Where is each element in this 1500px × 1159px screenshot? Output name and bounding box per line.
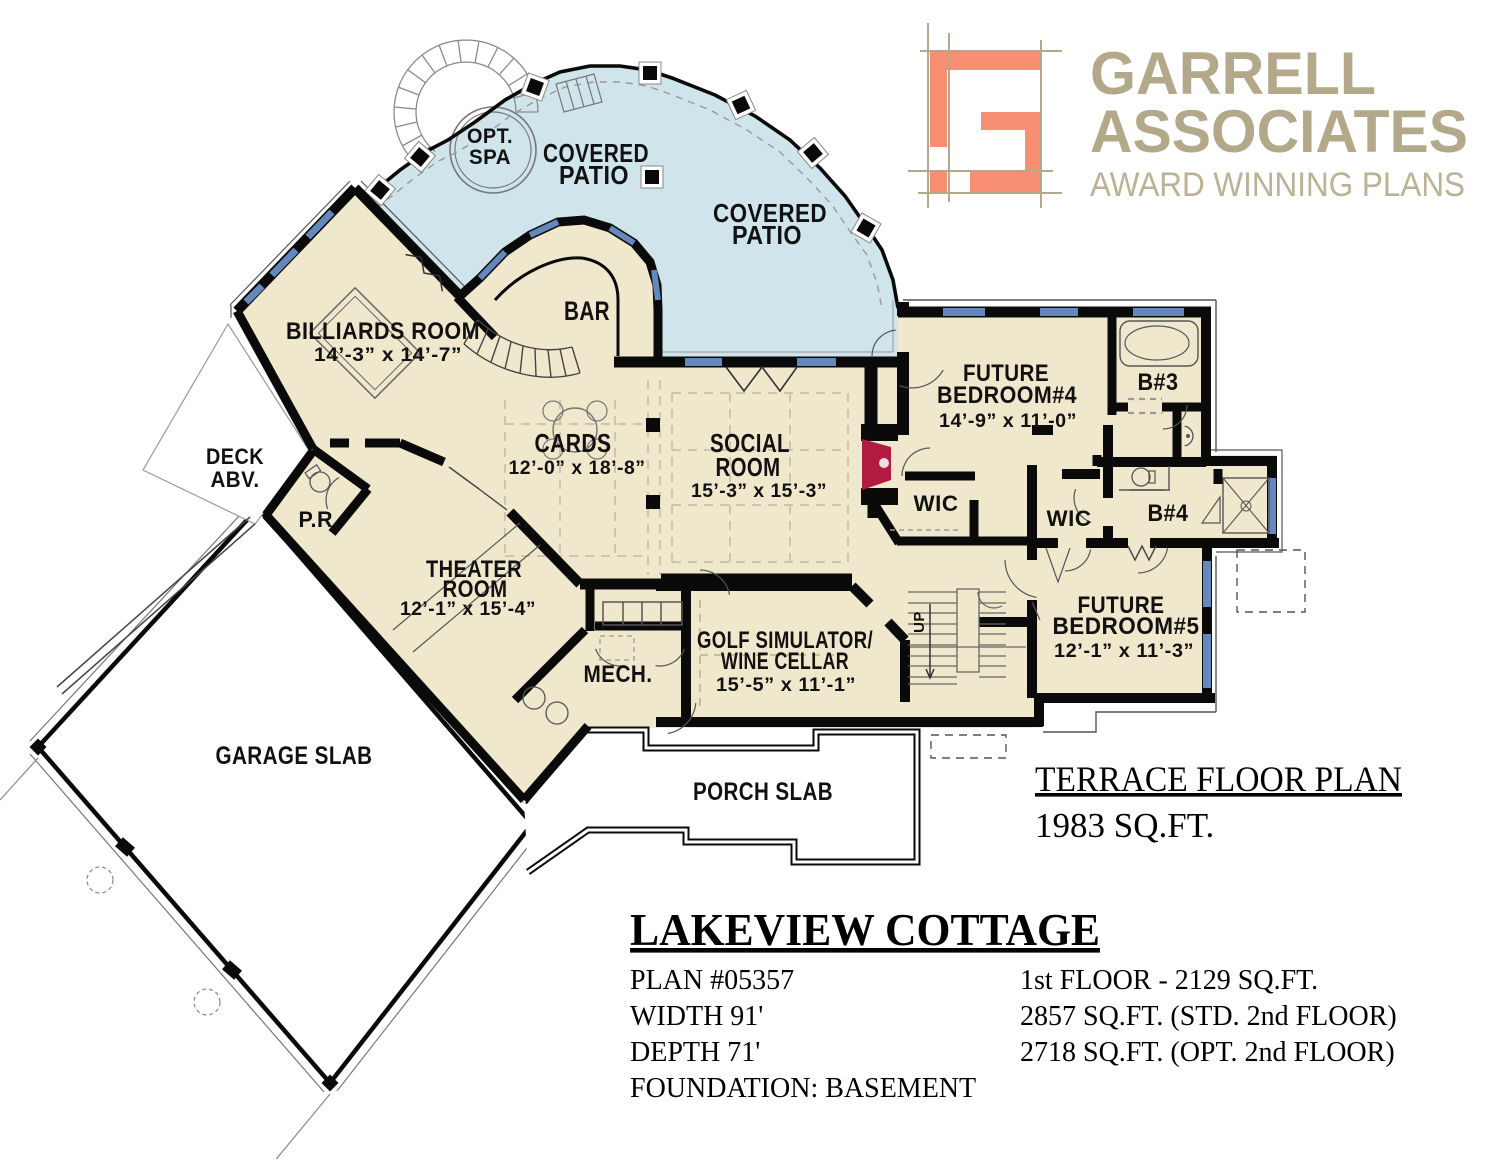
svg-text:TERRACE FLOOR PLAN: TERRACE FLOOR PLAN xyxy=(1035,759,1402,799)
svg-text:PATIO: PATIO xyxy=(559,160,629,190)
svg-text:P.R.: P.R. xyxy=(299,507,340,532)
svg-text:15’-3” x 15’-3”: 15’-3” x 15’-3” xyxy=(691,481,827,502)
svg-text:CARDS: CARDS xyxy=(535,428,612,458)
svg-text:PORCH SLAB: PORCH SLAB xyxy=(693,778,833,806)
svg-text:GARRELL: GARRELL xyxy=(1090,40,1376,107)
svg-text:WIC: WIC xyxy=(914,491,959,516)
svg-text:DECK: DECK xyxy=(206,444,264,469)
svg-text:WIC: WIC xyxy=(1047,506,1092,531)
svg-text:14’-3” x 14’-7”: 14’-3” x 14’-7” xyxy=(314,345,462,366)
svg-text:GARAGE SLAB: GARAGE SLAB xyxy=(216,742,373,770)
svg-text:B#4: B#4 xyxy=(1148,500,1189,527)
svg-text:12’-0” x 18’-8”: 12’-0” x 18’-8” xyxy=(509,458,646,479)
svg-text:BEDROOM#5: BEDROOM#5 xyxy=(1053,613,1200,640)
svg-text:BILLIARDS ROOM: BILLIARDS ROOM xyxy=(286,318,480,345)
svg-text:ABV.: ABV. xyxy=(211,467,260,492)
svg-text:BEDROOM#4: BEDROOM#4 xyxy=(937,382,1077,409)
svg-text:2718 SQ.FT. (OPT. 2nd FLOOR): 2718 SQ.FT. (OPT. 2nd FLOOR) xyxy=(1020,1037,1395,1068)
svg-text:2857 SQ.FT. (STD. 2nd FLOOR): 2857 SQ.FT. (STD. 2nd FLOOR) xyxy=(1020,1001,1397,1032)
svg-text:ROOM: ROOM xyxy=(716,452,781,482)
svg-text:WIDTH 91': WIDTH 91' xyxy=(630,1001,763,1032)
svg-text:WINE CELLAR: WINE CELLAR xyxy=(721,648,849,675)
svg-text:OPT.: OPT. xyxy=(467,125,513,148)
svg-text:FOUNDATION: BASEMENT: FOUNDATION: BASEMENT xyxy=(630,1073,976,1104)
svg-text:LAKEVIEW COTTAGE: LAKEVIEW COTTAGE xyxy=(630,904,1100,955)
svg-text:B#3: B#3 xyxy=(1138,369,1179,396)
svg-text:1st FLOOR - 2129 SQ.FT.: 1st FLOOR - 2129 SQ.FT. xyxy=(1020,965,1318,996)
svg-text:MECH.: MECH. xyxy=(584,661,653,688)
svg-text:12’-1” x 11’-3”: 12’-1” x 11’-3” xyxy=(1054,641,1194,662)
svg-text:ASSOCIATES: ASSOCIATES xyxy=(1090,98,1468,165)
svg-text:12’-1” x 15’-4”: 12’-1” x 15’-4” xyxy=(400,599,536,620)
svg-text:BAR: BAR xyxy=(564,296,610,326)
svg-text:DEPTH 71': DEPTH 71' xyxy=(630,1037,760,1068)
svg-text:UP: UP xyxy=(911,611,928,633)
svg-text:SPA: SPA xyxy=(469,146,511,169)
svg-text:PLAN #05357: PLAN #05357 xyxy=(630,965,794,996)
svg-text:1983 SQ.FT.: 1983 SQ.FT. xyxy=(1035,806,1214,845)
svg-text:15’-5” x 11’-1”: 15’-5” x 11’-1” xyxy=(716,675,856,696)
svg-text:AWARD WINNING PLANS: AWARD WINNING PLANS xyxy=(1090,166,1465,204)
svg-text:14’-9” x 11’-0”: 14’-9” x 11’-0” xyxy=(939,411,1077,432)
svg-text:PATIO: PATIO xyxy=(732,220,802,250)
